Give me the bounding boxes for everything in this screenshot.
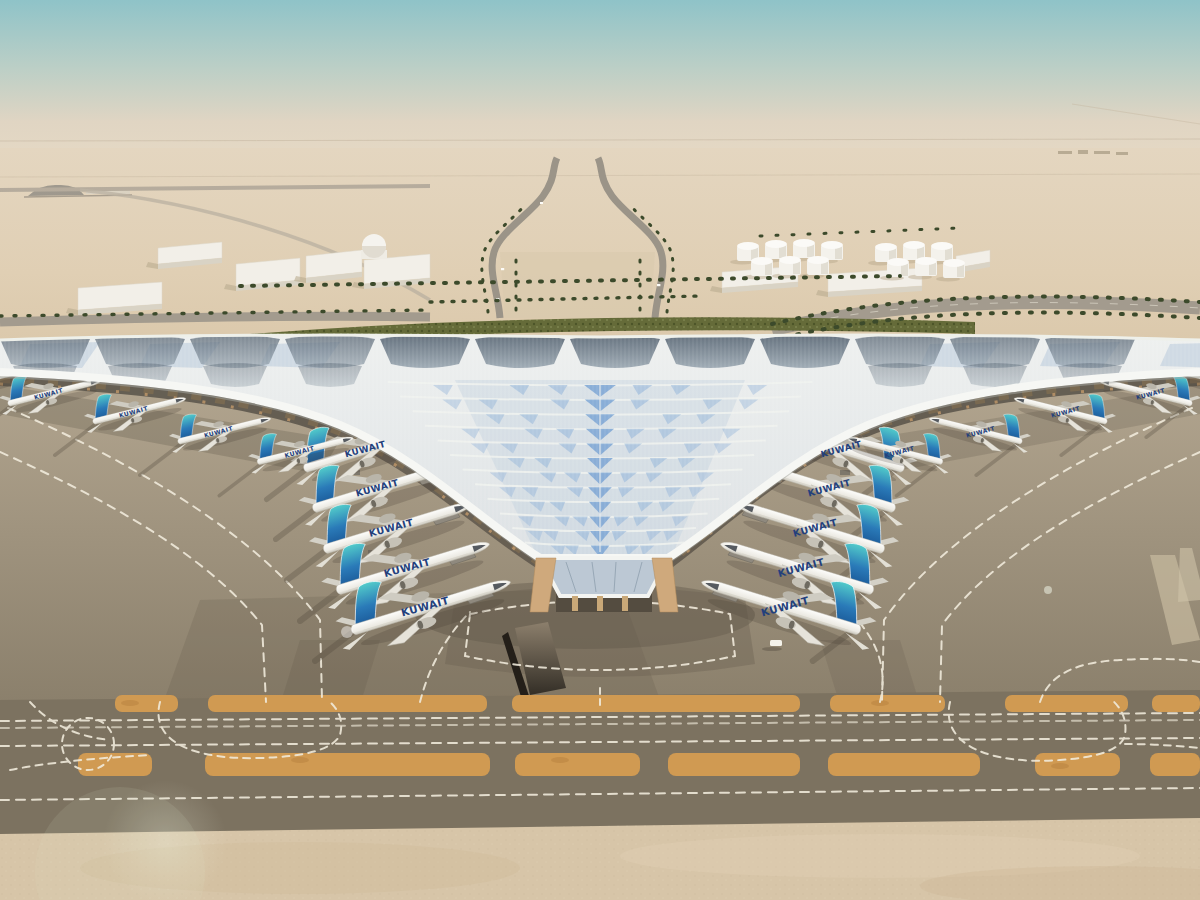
orange-shoulder [1035, 753, 1120, 776]
orange-shoulder [1152, 695, 1200, 712]
orange-shoulder [1005, 695, 1128, 712]
orange-shoulder [1150, 753, 1200, 776]
orange-shoulder [515, 753, 640, 776]
orange-shoulder [512, 695, 800, 712]
orange-shoulder [205, 753, 490, 776]
airport-aerial-rendering: KUWAITKUWAITKUWAITKUWAITKUWAITKUWAITKUWA… [0, 0, 1200, 900]
sky [0, 0, 1200, 152]
orange-shoulder [208, 695, 487, 712]
orange-shoulder [668, 753, 800, 776]
orange-shoulder [828, 753, 980, 776]
scene-canvas: KUWAITKUWAITKUWAITKUWAITKUWAITKUWAITKUWA… [0, 0, 1200, 900]
